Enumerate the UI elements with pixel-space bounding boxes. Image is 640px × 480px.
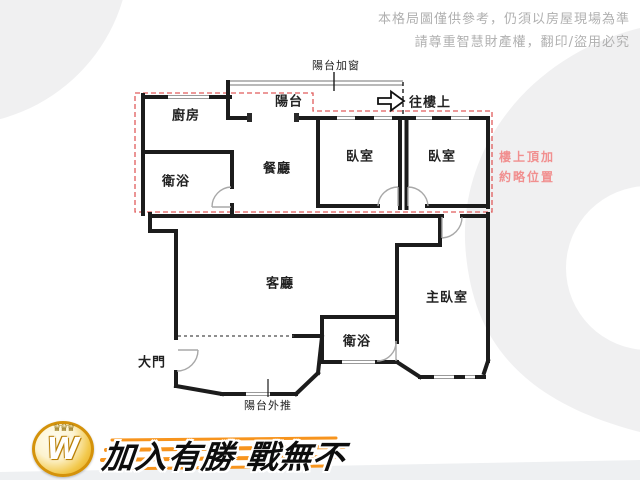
disclaimer-line1: 本格局圖僅供參考，仍須以房屋現場為準 bbox=[378, 8, 630, 31]
label-bathroom-lower: 衛浴 bbox=[343, 331, 371, 350]
label-master-bedroom: 主臥室 bbox=[426, 287, 468, 306]
rooftop-note-line1: 樓上頂加 bbox=[499, 148, 555, 165]
label-balcony-pushed-out: 陽台外推 bbox=[244, 397, 292, 413]
floorplan-page: 本格局圖僅供參考，仍須以房屋現場為準 請尊重智慧財產權，翻印/盜用必究 陽台加窗… bbox=[0, 0, 640, 480]
rooftop-note-line2: 約略位置 bbox=[499, 168, 555, 185]
brand-slogan: 加入有勝 戰無不勝 bbox=[95, 432, 365, 480]
disclaimer-text: 本格局圖僅供參考，仍須以房屋現場為準 請尊重智慧財產權，翻印/盜用必究 bbox=[378, 8, 630, 54]
label-balcony: 陽台 bbox=[275, 91, 303, 110]
balcony-railing bbox=[228, 81, 403, 85]
label-living-room: 客廳 bbox=[266, 273, 294, 292]
label-balcony-add-window: 陽台加窗 bbox=[312, 57, 360, 73]
label-to-upstairs: 往樓上 bbox=[409, 92, 451, 111]
up-arrow-icon bbox=[378, 92, 404, 111]
logo-letter: W bbox=[35, 432, 91, 467]
label-bedroom-right: 臥室 bbox=[428, 146, 456, 165]
brand-logo-icon: ♛♛♛ W bbox=[32, 421, 94, 477]
walls bbox=[143, 82, 488, 394]
label-kitchen: 廚房 bbox=[172, 105, 200, 124]
label-dining-room: 餐廳 bbox=[263, 158, 291, 177]
door-stops bbox=[247, 113, 299, 122]
label-bedroom-left: 臥室 bbox=[346, 146, 374, 165]
label-bathroom-upper: 衛浴 bbox=[162, 171, 190, 190]
label-main-door: 大門 bbox=[138, 352, 166, 371]
brand-banner: ♛♛♛ W 加入有勝 戰無不勝 bbox=[0, 418, 360, 480]
disclaimer-line2: 請尊重智慧財產權，翻印/盜用必究 bbox=[378, 31, 630, 54]
